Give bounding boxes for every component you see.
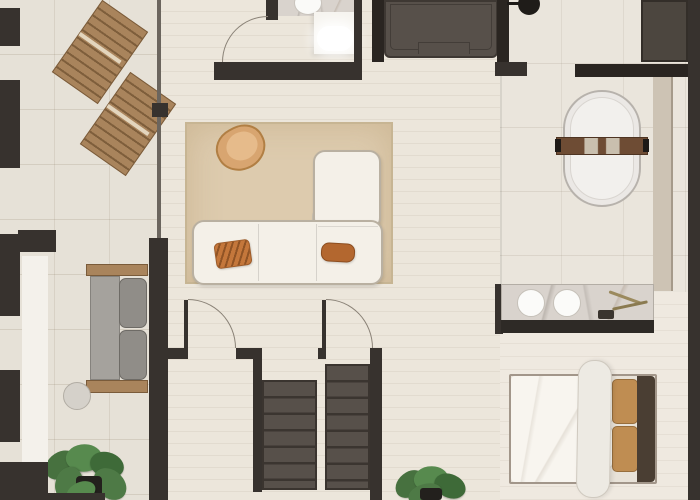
bath-caddy-clip (555, 139, 561, 152)
sofa-pillow-patterned (213, 239, 252, 270)
bathroom-partition (653, 77, 673, 291)
glass-joint (152, 103, 168, 117)
plant-pot (420, 488, 442, 500)
bath-caddy-clip (643, 139, 649, 152)
wardrobe (641, 0, 688, 62)
bench-frame-top (86, 264, 148, 276)
kitchen-wall-right (497, 0, 509, 64)
bench-frame-bottom (86, 380, 148, 393)
cabinet-unit-notch (418, 42, 470, 54)
staircase (325, 364, 370, 490)
wall-stub (18, 230, 56, 252)
sofa-seam (316, 224, 317, 281)
exterior-wall-left (0, 80, 20, 168)
kitchen-wall-foot (495, 62, 527, 76)
sofa-seam (318, 226, 378, 227)
staircase (262, 380, 317, 490)
kitchen-wall-left (372, 0, 384, 62)
bed-pillow-tan (612, 426, 638, 472)
hall-wall-segment (318, 348, 326, 359)
wc-wall-band (214, 62, 362, 80)
sofa-pillow-rust (321, 242, 356, 263)
vanity-sink (553, 289, 581, 317)
exterior-wall-left (0, 8, 20, 46)
exterior-wall-left (0, 234, 20, 316)
floor-plan (0, 0, 700, 500)
bath-caddy (556, 137, 648, 155)
stair-wall (253, 348, 262, 492)
bench-cushion (119, 330, 147, 380)
pilaster (22, 256, 48, 462)
exterior-wall-right (688, 0, 700, 500)
terrace-glass-line (157, 0, 161, 240)
vanity-tray (598, 310, 614, 319)
exterior-wall-corner (0, 493, 105, 500)
hall-wall-segment (166, 348, 188, 359)
exterior-wall-left (0, 370, 20, 442)
terrace-wall (149, 238, 168, 500)
bed-headboard (637, 376, 655, 482)
bench-cushion (119, 278, 147, 328)
bed-pillow-tan (612, 379, 638, 424)
stair-wall (370, 348, 382, 500)
sofa-chaise (313, 150, 381, 230)
bathroom-wall-band (575, 64, 690, 77)
bench-seat (90, 276, 120, 380)
sofa-seam (258, 224, 259, 281)
bed-throw-blanket (576, 360, 612, 499)
vanity-shelf-edge (501, 320, 654, 333)
wc-basin (317, 26, 353, 51)
side-table (63, 382, 91, 410)
vanity-sink (517, 289, 545, 317)
